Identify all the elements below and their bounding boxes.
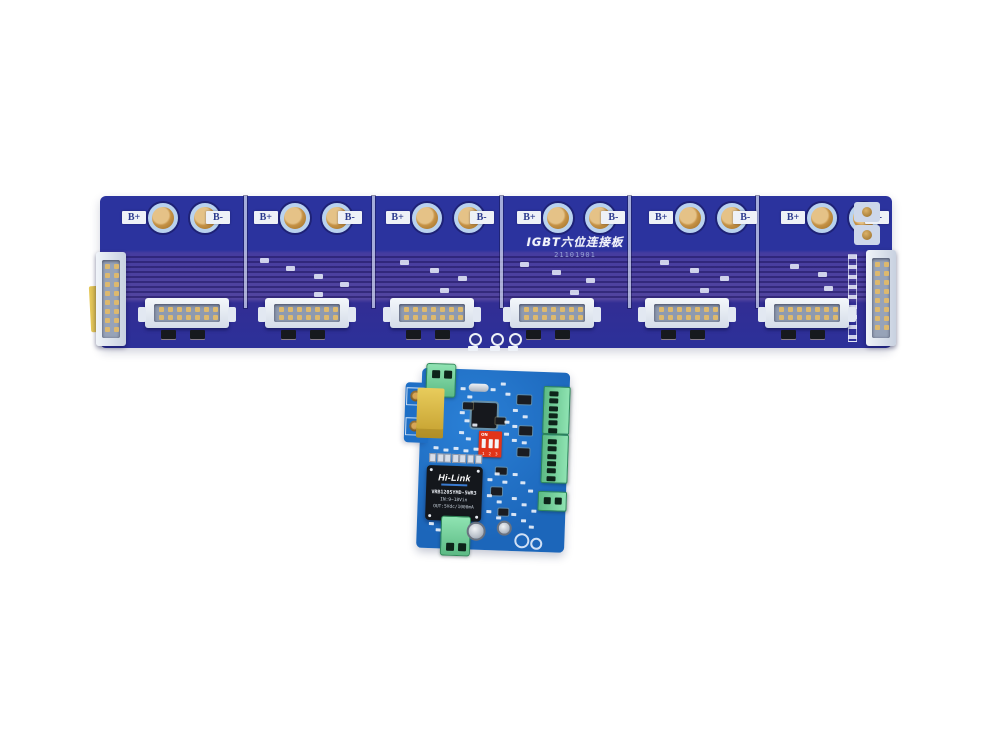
connector-pin [659,315,664,320]
connector-pin [578,315,583,320]
smd-component [523,415,528,418]
mosfet [661,330,676,339]
power-module: Hi-Link VRB1205YMD-5WR3 IN:9~18Vin OUT:5… [425,465,483,522]
mosfet [281,330,296,339]
connector-pin [788,315,793,320]
smd-component [429,522,434,525]
connector-pin [704,307,709,312]
smd-component [520,481,525,484]
smd-component [512,439,517,442]
connector-pin [542,315,547,320]
connector-pin [533,315,538,320]
connector-pin [315,307,320,312]
terminal-slot [458,543,466,551]
smd-component [497,500,502,503]
power-module-model: VRB1205YMD-5WR3 [426,489,482,497]
mosfet [810,330,825,339]
connector-wing [728,307,736,322]
brass-ring [862,230,872,240]
silkscreen-title-block: IGBT六位连接板 21101901 [515,234,635,259]
smd-component [660,260,669,265]
board-serial: 21101901 [515,251,635,259]
terminal-slot [555,497,562,504]
connector-pin [195,307,200,312]
connector-pin [105,264,110,269]
smd-component [453,447,458,450]
connector-wing [473,307,481,322]
terminal-positive-label: B+ [386,211,410,224]
connector-pin [875,325,880,330]
connector-pin [114,291,119,296]
connector-pin [114,300,119,305]
smd-component [467,395,472,398]
terminal-slot [549,391,558,396]
panel-separation-slot [628,196,631,308]
connector-pin [824,307,829,312]
terminal-positive-label: B+ [517,211,541,224]
module-corner-marker [475,516,478,519]
smd-component [433,446,438,449]
connector-pin [704,315,709,320]
smd-component [487,478,492,481]
idc-connector [390,298,474,328]
soic-chip [491,487,502,495]
connector-pin [560,315,565,320]
terminal-slot [549,413,558,418]
connector-pin [884,325,889,330]
smd-component [513,473,518,476]
dip-position-number: 2 [488,451,492,456]
smd-component [464,419,469,422]
mosfet [555,330,570,339]
connector-pin [806,307,811,312]
connector-pin [884,271,889,276]
connector-slot [872,258,890,338]
connector-pin [668,315,673,320]
soic-chip [517,448,529,456]
terminal-negative-label: B- [601,211,625,224]
connector-slot [654,304,720,322]
connector-pin [884,316,889,321]
connector-slot [102,260,120,338]
terminal-positive-label: B+ [122,211,146,224]
connector-pin [533,307,538,312]
connector-pin [306,315,311,320]
smd-component [529,526,534,529]
connector-pin [449,307,454,312]
connector-pin [288,315,293,320]
connector-pin [458,307,463,312]
terminal-slot [446,543,454,551]
smd-component [522,503,527,506]
test-point-pad [468,346,478,351]
module-corner-marker [428,514,431,517]
connector-pin [884,298,889,303]
terminal-negative-label: B- [733,211,757,224]
smd-component [824,286,833,291]
connector-pin [159,307,164,312]
power-module-output-rating: OUT:5Vdc/1000mA [425,504,481,511]
power-module-brand: Hi-Link [426,472,482,484]
connector-pin [159,315,164,320]
connector-pin [542,307,547,312]
connector-pin [659,307,664,312]
connector-pin [458,315,463,320]
silkscreen-strip [848,254,857,342]
power-module-logo-bar [441,483,467,486]
connector-pin [569,307,574,312]
connector-pin [779,315,784,320]
soic-chip [463,402,473,409]
connector-pin [884,280,889,285]
connector-pin [114,318,119,323]
gold-pad-hole [148,203,178,233]
connector-wing [758,307,766,322]
brass-ring [862,207,872,217]
smd-component [314,274,323,279]
connector-wing [138,307,146,322]
smd-component [459,431,464,434]
smd-component [496,516,501,519]
board-title: IGBT六位连接板 [515,234,635,250]
mosfet [190,330,205,339]
terminal-slot [547,468,556,473]
connector-pin [875,262,880,267]
optocoupler [452,454,459,463]
smd-component [531,510,536,513]
smd-component [260,258,269,263]
connector-pin [695,307,700,312]
module-corner-marker [477,470,480,473]
smd-component [400,260,409,265]
connector-pin [686,307,691,312]
connector-pin [875,298,880,303]
connector-pin [114,282,119,287]
smd-component [472,424,477,427]
connector-wing [258,307,266,322]
test-point [491,333,504,346]
smd-component [314,292,323,297]
smd-component [436,528,441,531]
optocoupler [475,455,482,464]
gold-pad-hole [412,203,442,233]
smd-component [504,421,509,424]
connector-pin [333,307,338,312]
connector-pin [686,315,691,320]
connector-pin [288,307,293,312]
optocoupler [437,453,444,462]
edge-idc-connector [866,250,896,346]
connector-pin [875,271,880,276]
smd-component [512,497,517,500]
terminal-slot [432,370,440,378]
connector-pin [413,315,418,320]
smd-component [520,262,529,267]
smd-component [513,409,518,412]
connector-pin [114,309,119,314]
smd-component [487,494,492,497]
terminal-negative-label: B- [338,211,362,224]
smd-component [790,264,799,269]
mosfet [310,330,325,339]
idc-connector [510,298,594,328]
mosfet [435,330,450,339]
connector-pin [114,264,119,269]
yellow-transformer [416,388,445,439]
connector-slot [774,304,840,322]
connector-pin [422,315,427,320]
smd-component [466,437,471,440]
smd-component [570,290,579,295]
connector-pin [168,315,173,320]
connector-pin [413,307,418,312]
smd-component [440,288,449,293]
connector-pin [449,315,454,320]
terminal-slot [544,497,551,504]
bottom-terminal [440,515,471,556]
edge-mount-pad [854,202,880,222]
connector-pin [333,315,338,320]
optocoupler [467,454,474,463]
terminal-slot [548,428,557,433]
smd-component [528,489,533,492]
mosfet [781,330,796,339]
terminal-slot [548,439,557,444]
terminal-slot [548,420,557,425]
test-point [469,333,482,346]
connector-pin [204,307,209,312]
connector-pin [105,309,110,314]
smd-component [700,288,709,293]
terminal-slot [547,454,556,459]
smd-component [504,433,509,436]
connector-pin [440,307,445,312]
test-point [509,333,522,346]
idc-connector [765,298,849,328]
connector-pin [713,315,718,320]
product-photo: IGBT六位连接板 21101901 B+B-B+B-B+B-B+B-B+B-B… [0,0,1000,750]
power-module-input-rating: IN:9~18Vin [426,497,482,504]
connector-pin [186,315,191,320]
dip-switch-lever [482,439,486,448]
connector-pin [204,315,209,320]
connector-pin [213,315,218,320]
mosfet [526,330,541,339]
edge-idc-connector [96,252,126,346]
io-terminal-block-upper [542,386,571,435]
connector-pin [875,289,880,294]
dip-switch: ON 123 [478,431,502,458]
connector-pin [551,315,556,320]
smd-component [458,276,467,281]
test-point-pad [508,346,518,351]
connector-wing [383,307,391,322]
connector-pin [306,307,311,312]
connector-pin [884,307,889,312]
connector-wing [503,307,511,322]
connector-pin [524,307,529,312]
connector-pin [788,307,793,312]
connector-pin [884,262,889,267]
terminal-positive-label: B+ [781,211,805,224]
terminal-positive-label: B+ [649,211,673,224]
connector-pin [404,315,409,320]
connector-pin [105,291,110,296]
connector-pin [524,315,529,320]
connector-pin [114,327,119,332]
connector-pin [105,318,110,323]
smd-component [463,449,468,452]
connector-wing [638,307,646,322]
connector-pin [668,307,673,312]
connector-slot [274,304,340,322]
soic-chip [517,395,531,404]
connector-pin [279,315,284,320]
terminal-slot [547,461,556,466]
panel-separation-slot [500,196,503,308]
connector-pin [195,315,200,320]
edge-mount-pad [854,225,880,245]
connector-pin [833,315,838,320]
connector-wing [348,307,356,322]
connector-pin [105,282,110,287]
connector-pin [875,316,880,321]
connector-pin [324,315,329,320]
connector-pin [186,307,191,312]
connector-pin [105,273,110,278]
connector-pin [875,307,880,312]
connector-wing [593,307,601,322]
output-terminal [537,491,567,512]
smd-component [461,387,466,390]
smd-component [505,393,510,396]
io-terminal-block-lower [540,434,569,484]
connector-pin [875,280,880,285]
connector-pin [404,307,409,312]
smd-component [720,276,729,281]
smd-component [460,411,465,414]
soic-chip [519,426,532,435]
optocoupler [429,453,436,462]
control-board: ON 123 Hi-Link VRB1205YMD-5WR3 IN:9~18Vi… [400,365,573,563]
connector-pin [779,307,784,312]
connector-pin [815,307,820,312]
connector-pin [695,315,700,320]
smd-component [512,425,517,428]
connector-pin [440,315,445,320]
smd-component [521,519,526,522]
connector-pin [177,307,182,312]
smd-component [522,441,527,444]
terminal-slot [444,370,452,378]
smd-component [340,282,349,287]
connector-pin [824,315,829,320]
connector-pin [713,307,718,312]
connector-pin [569,315,574,320]
gold-pad-hole [543,203,573,233]
mosfet [161,330,176,339]
smd-component [586,278,595,283]
connector-wing [228,307,236,322]
connector-pin [815,315,820,320]
connector-pin [315,315,320,320]
idc-connector [265,298,349,328]
terminal-slot [549,406,558,411]
gold-pad-hole [280,203,310,233]
panel-separation-slot [372,196,375,308]
connector-pin [213,307,218,312]
connector-pin [833,307,838,312]
trace-band [100,253,892,301]
crystal-oscillator [469,383,489,392]
terminal-negative-label: B- [206,211,230,224]
connector-pin [422,307,427,312]
terminal-positive-label: B+ [254,211,278,224]
connector-slot [519,304,585,322]
mosfet [690,330,705,339]
idc-connector [145,298,229,328]
connector-pin [797,307,802,312]
connector-pin [324,307,329,312]
smd-component [552,270,561,275]
connector-pin [677,307,682,312]
dip-on-label: ON [481,432,488,437]
smd-component [491,388,496,391]
smd-component [495,472,500,475]
smd-component [286,266,295,271]
optocoupler [444,454,451,463]
igbt-connector-board: IGBT六位连接板 21101901 B+B-B+B-B+B-B+B-B+B-B… [100,196,892,348]
smd-component [502,481,507,484]
connector-pin [560,307,565,312]
connector-pin [114,273,119,278]
connector-pin [168,307,173,312]
module-corner-marker [430,468,433,471]
gold-pad-hole [675,203,705,233]
smd-component [511,513,516,516]
smd-component [443,449,448,452]
dip-switch-lever [495,439,499,448]
mosfet [406,330,421,339]
connector-pin [677,315,682,320]
connector-pin [578,307,583,312]
smd-component [501,382,506,385]
test-point-pad [490,346,500,351]
terminal-slot [549,398,558,403]
connector-pin [797,315,802,320]
panel-separation-slot [244,196,247,308]
smd-component [473,448,478,451]
dip-position-number: 3 [494,451,498,456]
smd-component [818,272,827,277]
terminal-slot [547,446,556,451]
connector-pin [105,327,110,332]
connector-pin [806,315,811,320]
connector-pin [279,307,284,312]
connector-pin [551,307,556,312]
terminal-negative-label: B- [470,211,494,224]
connector-pin [431,315,436,320]
gold-pad-hole [807,203,837,233]
dip-switch-lever [488,439,492,448]
connector-pin [884,289,889,294]
connector-pin [177,315,182,320]
idc-connector [645,298,729,328]
connector-wing [848,307,856,322]
connector-slot [154,304,220,322]
connector-pin [297,315,302,320]
smd-component [690,268,699,273]
